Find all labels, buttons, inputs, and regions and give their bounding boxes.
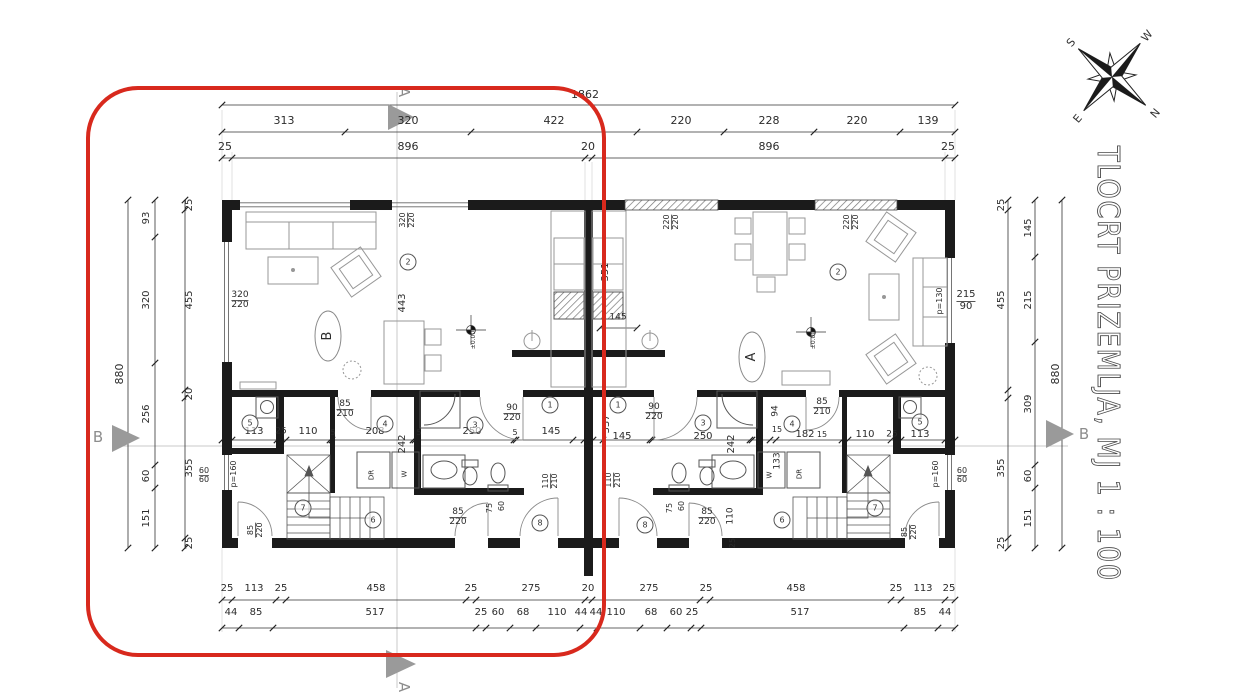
dim-label: 44 — [590, 608, 603, 619]
dim-label: p=130 — [936, 287, 944, 314]
dim-label: 68 — [645, 608, 658, 619]
dim-label: 151 — [1024, 508, 1035, 527]
dim-label: 25 — [886, 430, 897, 439]
dim-label: 25 — [185, 199, 196, 212]
dim-label: 145 — [609, 313, 626, 322]
dim-label: 44 — [939, 608, 952, 619]
floorplan-canvas: { "title": { "text": "TLOCRT PRIZEMLJA, … — [0, 0, 1240, 699]
dim-label: 256 — [142, 404, 153, 423]
dim-label: 85220 — [449, 508, 466, 528]
dim-label: 242 — [727, 434, 738, 453]
dim-label: 85210 — [813, 398, 830, 418]
dim-label: W — [766, 472, 773, 479]
dim-label: 25 — [218, 141, 232, 153]
dim-label: 182 — [795, 430, 814, 441]
dim-label: DR — [796, 469, 803, 479]
plan-drawing: A A B B S W N E TLOCRT PRIZEMLJA, MJ 1 :… — [0, 0, 1240, 699]
dim-label: ±0.00 — [811, 331, 817, 349]
dim-label: 6060 — [957, 467, 967, 485]
dim-label: A — [745, 353, 759, 362]
dim-label: 60 — [498, 501, 506, 511]
dim-label: 320 — [398, 115, 419, 127]
dim-label: 880 — [1050, 364, 1062, 385]
compass-s-label: S — [1064, 36, 1078, 50]
dim-label: 458 — [786, 584, 805, 595]
dim-label: 275 — [521, 584, 540, 595]
dim-label: 458 — [366, 584, 385, 595]
dim-label: 25 — [475, 608, 488, 619]
dim-label: 113 — [910, 430, 929, 441]
dim-label: 110210 — [542, 473, 560, 488]
dim-label: 25 — [185, 537, 196, 550]
dim-label: 351 — [601, 262, 612, 281]
dim-label: 275 — [639, 584, 658, 595]
dim-label: 228 — [759, 115, 780, 127]
dim-label: B — [321, 332, 335, 341]
dim-label: 110 — [547, 608, 566, 619]
room-number-badge: 7 — [867, 500, 884, 517]
dim-label: 21590 — [956, 290, 975, 312]
dim-label: 6060 — [199, 467, 209, 485]
dim-label: 85220 — [698, 508, 715, 528]
dim-label: 68 — [517, 608, 530, 619]
room-number-badge: 8 — [532, 515, 549, 532]
dim-label: 220 — [847, 115, 868, 127]
walls — [222, 200, 955, 576]
dim-label: 44 — [575, 608, 588, 619]
dim-label: 60 — [1024, 470, 1035, 483]
dim-label: 75 — [486, 503, 494, 513]
dim-label: 85210 — [336, 400, 353, 420]
dim-label: 15 — [817, 431, 827, 439]
dim-label: 25 — [943, 584, 956, 595]
dim-label: 320220 — [399, 212, 417, 227]
dim-label: 110 — [606, 608, 625, 619]
room-number-badge: 5 — [242, 415, 259, 432]
dim-label: 85220 — [247, 522, 265, 537]
dim-label: 60 — [678, 501, 686, 511]
dim-label: 151 — [142, 508, 153, 527]
dim-label: 220220 — [663, 214, 681, 229]
dim-label: 5 — [416, 429, 421, 437]
dim-label: 25 — [997, 537, 1008, 550]
dim-label: 25 — [997, 199, 1008, 212]
compass-w-label: W — [1139, 28, 1156, 45]
dim-label: 60 — [142, 470, 153, 483]
section-a-top-label: A — [395, 87, 413, 98]
dim-label: 320220 — [231, 291, 248, 311]
dim-label: 1862 — [571, 89, 599, 101]
section-b-left-triangle — [112, 425, 140, 452]
dim-label: 113 — [244, 584, 263, 595]
room-number-badge: 1 — [610, 397, 627, 414]
room-number-badge: 5 — [912, 414, 929, 431]
dim-label: 455 — [997, 290, 1008, 309]
dim-label: 145 — [612, 432, 631, 443]
dim-label: 85220 — [901, 524, 919, 539]
dim-label: 25 — [729, 538, 737, 548]
dim-label: 880 — [114, 364, 126, 385]
dim-label: W — [401, 471, 408, 478]
dim-label: 110 — [726, 507, 735, 524]
dim-label: 337 — [602, 414, 613, 433]
dim-label: ±0.00 — [471, 331, 477, 349]
room-number-badge: 2 — [400, 254, 417, 271]
room-number-badge: 3 — [695, 415, 712, 432]
dim-label: 250 — [693, 432, 712, 443]
dim-label: 85 — [914, 608, 927, 619]
dim-label: 145 — [541, 427, 560, 438]
dim-label: 20 — [581, 141, 595, 153]
dim-label: 60 — [670, 608, 683, 619]
dim-label: 110 — [298, 427, 317, 438]
dim-label: 110 — [855, 430, 874, 441]
dim-label: 110210 — [605, 472, 623, 487]
room-number-badge: 1 — [542, 397, 559, 414]
section-a-bottom-label: A — [395, 682, 413, 693]
dim-label: 113 — [913, 584, 932, 595]
compass-e-label: E — [1070, 112, 1084, 126]
dim-label: 25 — [941, 141, 955, 153]
room-number-badge: 6 — [365, 512, 382, 529]
room-number-badge: 7 — [295, 500, 312, 517]
dim-label: 517 — [365, 608, 384, 619]
dim-label: p=160 — [230, 460, 238, 487]
level-markers — [456, 315, 826, 347]
dim-label: 25 — [686, 608, 699, 619]
dim-label: 25 — [275, 584, 288, 595]
section-b-right-triangle — [1046, 420, 1074, 448]
dim-label: 85 — [250, 608, 263, 619]
dim-label: 133 — [773, 452, 782, 469]
dim-label: 20 — [582, 584, 595, 595]
dim-label: 25 — [890, 584, 903, 595]
dim-label: 25 — [465, 584, 478, 595]
section-b-left-label: B — [93, 428, 103, 446]
compass-rose: S W N E — [1029, 0, 1198, 162]
dim-label: 309 — [1024, 394, 1035, 413]
section-a-bottom-triangle — [386, 650, 416, 678]
room-number-badge: 2 — [830, 264, 847, 281]
drawing-title: TLOCRT PRIZEMLJA, MJ 1 : 100 — [1090, 145, 1125, 582]
dim-label: 355 — [185, 458, 196, 477]
dimension-lines — [128, 105, 1062, 632]
dim-label: 455 — [185, 290, 196, 309]
dim-label: 25 — [700, 584, 713, 595]
dim-label: 422 — [544, 115, 565, 127]
dim-label: 215 — [1024, 290, 1035, 309]
dim-label: 896 — [759, 141, 780, 153]
room-number-badge: 4 — [784, 416, 801, 433]
dim-label: 44 — [225, 608, 238, 619]
dim-label: 15 — [772, 426, 782, 434]
dim-label: 355 — [997, 458, 1008, 477]
room-number-badge: 3 — [467, 417, 484, 434]
dim-label: 145 — [1024, 218, 1035, 237]
dim-label: 242 — [398, 434, 409, 453]
dim-label: 313 — [274, 115, 295, 127]
section-b-right-label: B — [1079, 425, 1089, 443]
dim-label: 60 — [492, 608, 505, 619]
stairs-right-unit — [793, 455, 890, 539]
dim-label: 94 — [771, 405, 780, 416]
dim-label: 443 — [398, 293, 409, 312]
dim-label: 93 — [142, 212, 153, 225]
dim-label: 5 — [330, 429, 335, 437]
dim-label: 90220 — [645, 403, 662, 423]
dimension-ticks — [125, 102, 1065, 631]
dim-label: p=160 — [932, 460, 940, 487]
dim-label: 517 — [790, 608, 809, 619]
dim-label: 896 — [398, 141, 419, 153]
room-number-badge: 6 — [774, 512, 791, 529]
dim-label: DR — [368, 470, 375, 480]
dim-label: 139 — [918, 115, 939, 127]
room-number-badge: 8 — [637, 517, 654, 534]
dim-label: 90220 — [503, 404, 520, 424]
room-number-badge: 4 — [377, 416, 394, 433]
dim-label: 220220 — [843, 214, 861, 229]
dim-label: 5 — [512, 429, 517, 437]
dim-label: 320 — [142, 290, 153, 309]
dim-label: 220 — [671, 115, 692, 127]
dim-label: 75 — [666, 503, 674, 513]
compass-n-label: N — [1148, 106, 1163, 121]
dim-label: 25 — [221, 584, 234, 595]
dim-label: 20 — [185, 388, 196, 401]
dim-label: 25 — [275, 427, 286, 436]
